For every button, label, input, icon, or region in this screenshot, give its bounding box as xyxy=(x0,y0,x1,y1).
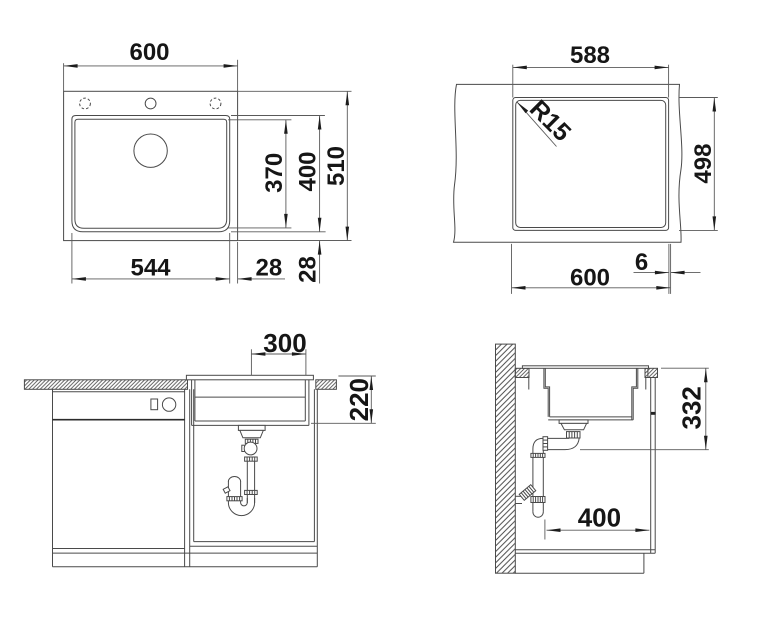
svg-text:300: 300 xyxy=(263,328,306,358)
svg-text:28: 28 xyxy=(295,256,322,283)
svg-text:220: 220 xyxy=(344,378,374,421)
svg-text:370: 370 xyxy=(261,153,288,193)
svg-text:400: 400 xyxy=(295,151,322,191)
svg-text:498: 498 xyxy=(690,144,717,184)
svg-text:332: 332 xyxy=(677,386,707,429)
svg-text:544: 544 xyxy=(130,255,171,282)
svg-text:600: 600 xyxy=(129,39,169,66)
svg-text:28: 28 xyxy=(256,255,283,282)
svg-text:6: 6 xyxy=(635,249,648,276)
svg-text:400: 400 xyxy=(578,502,621,532)
svg-text:588: 588 xyxy=(570,42,610,69)
svg-text:600: 600 xyxy=(570,265,610,292)
svg-text:510: 510 xyxy=(323,146,350,186)
